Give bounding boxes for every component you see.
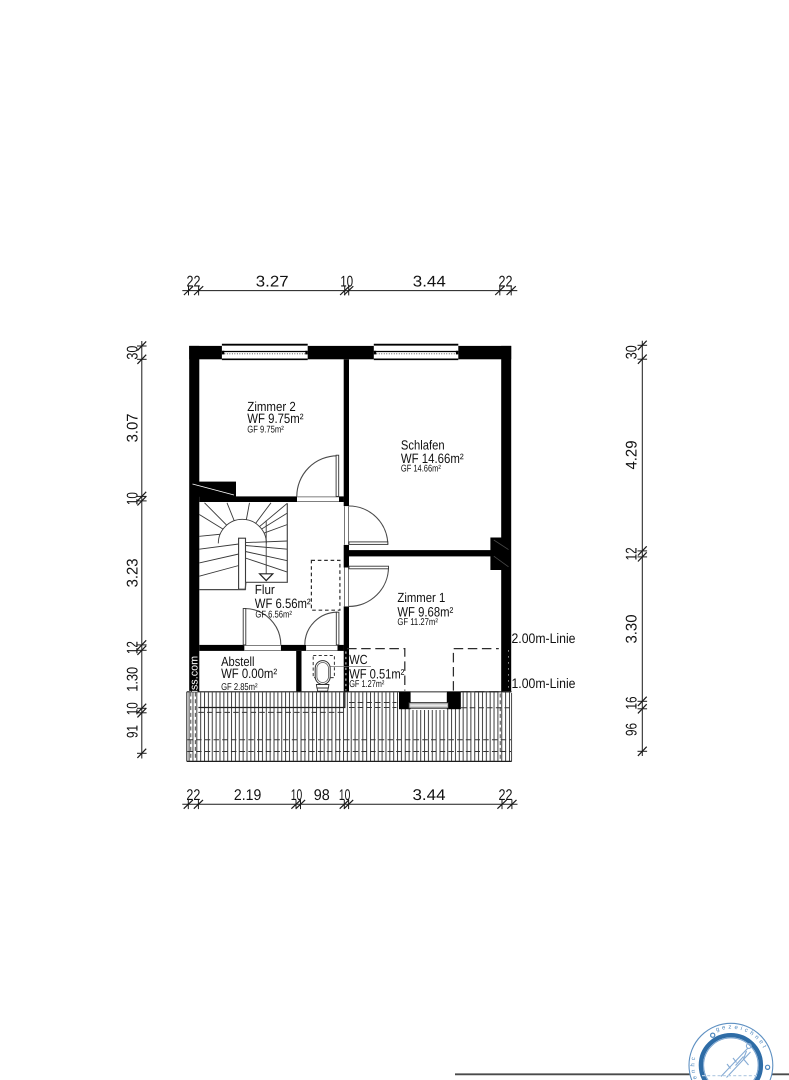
svg-text:22: 22 — [186, 787, 200, 804]
svg-text:22: 22 — [499, 273, 513, 290]
svg-text:WF 6.56m²: WF 6.56m² — [255, 596, 311, 611]
svg-text:GF 1.27m²: GF 1.27m² — [349, 679, 385, 690]
svg-text:3.30: 3.30 — [623, 614, 640, 643]
svg-text:3.44: 3.44 — [413, 787, 446, 804]
svg-text:Flur: Flur — [255, 582, 276, 597]
svg-text:98: 98 — [314, 787, 330, 804]
svg-text:WC: WC — [349, 652, 368, 667]
svg-text:WF 0.00m²: WF 0.00m² — [221, 666, 277, 681]
svg-text:30: 30 — [125, 345, 142, 359]
svg-text:1.00m-Linie: 1.00m-Linie — [512, 676, 576, 691]
svg-text:GF 14.66m²: GF 14.66m² — [401, 464, 442, 475]
svg-text:3.27: 3.27 — [256, 273, 289, 290]
svg-text:91: 91 — [125, 725, 142, 738]
svg-text:2.19: 2.19 — [234, 787, 261, 804]
svg-text:1.30: 1.30 — [125, 666, 142, 691]
svg-text:GF 11.27m²: GF 11.27m² — [397, 617, 438, 628]
svg-text:4.29: 4.29 — [623, 441, 640, 470]
svg-text:3.07: 3.07 — [125, 413, 142, 442]
svg-text:22: 22 — [499, 787, 513, 804]
svg-text:2.00m-Linie: 2.00m-Linie — [512, 631, 576, 646]
svg-text:12: 12 — [125, 641, 142, 654]
svg-text:GF 2.85m²: GF 2.85m² — [221, 682, 258, 693]
svg-text:96: 96 — [623, 723, 640, 736]
svg-text:10: 10 — [291, 787, 303, 804]
svg-text:16: 16 — [623, 697, 640, 710]
svg-text:GF 6.56m²: GF 6.56m² — [255, 610, 292, 621]
svg-text:GF 9.75m²: GF 9.75m² — [247, 424, 284, 435]
svg-text:iss.com: iss.com — [189, 656, 201, 693]
svg-text:3.44: 3.44 — [413, 273, 446, 290]
svg-text:Zimmer 1: Zimmer 1 — [397, 590, 445, 605]
svg-text:10: 10 — [339, 787, 351, 804]
svg-text:10: 10 — [125, 702, 142, 715]
svg-text:10: 10 — [125, 492, 142, 505]
svg-text:3.23: 3.23 — [125, 558, 142, 587]
svg-text:12: 12 — [623, 547, 640, 560]
svg-text:30: 30 — [623, 345, 640, 359]
svg-text:22: 22 — [187, 273, 201, 290]
svg-text:10: 10 — [340, 273, 353, 290]
